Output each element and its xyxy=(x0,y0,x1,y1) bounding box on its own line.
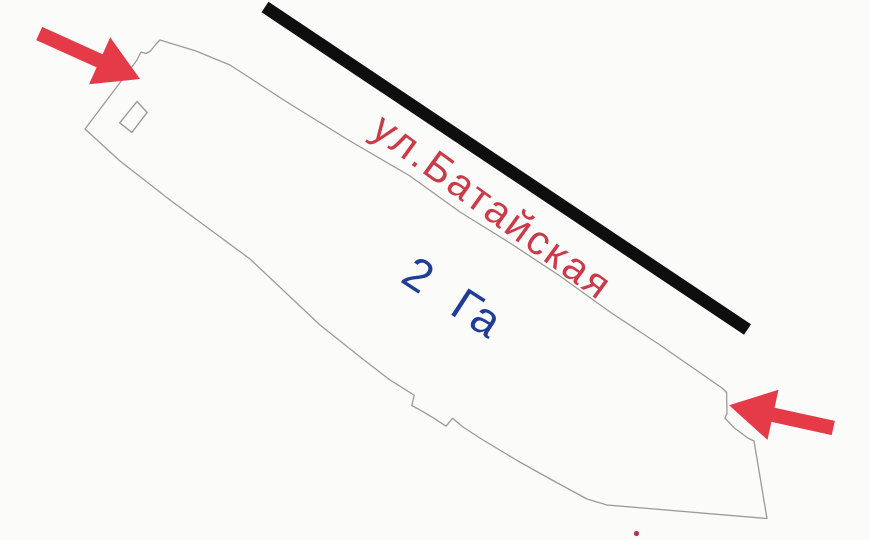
svg-text:2Га: 2Га xyxy=(394,246,512,348)
